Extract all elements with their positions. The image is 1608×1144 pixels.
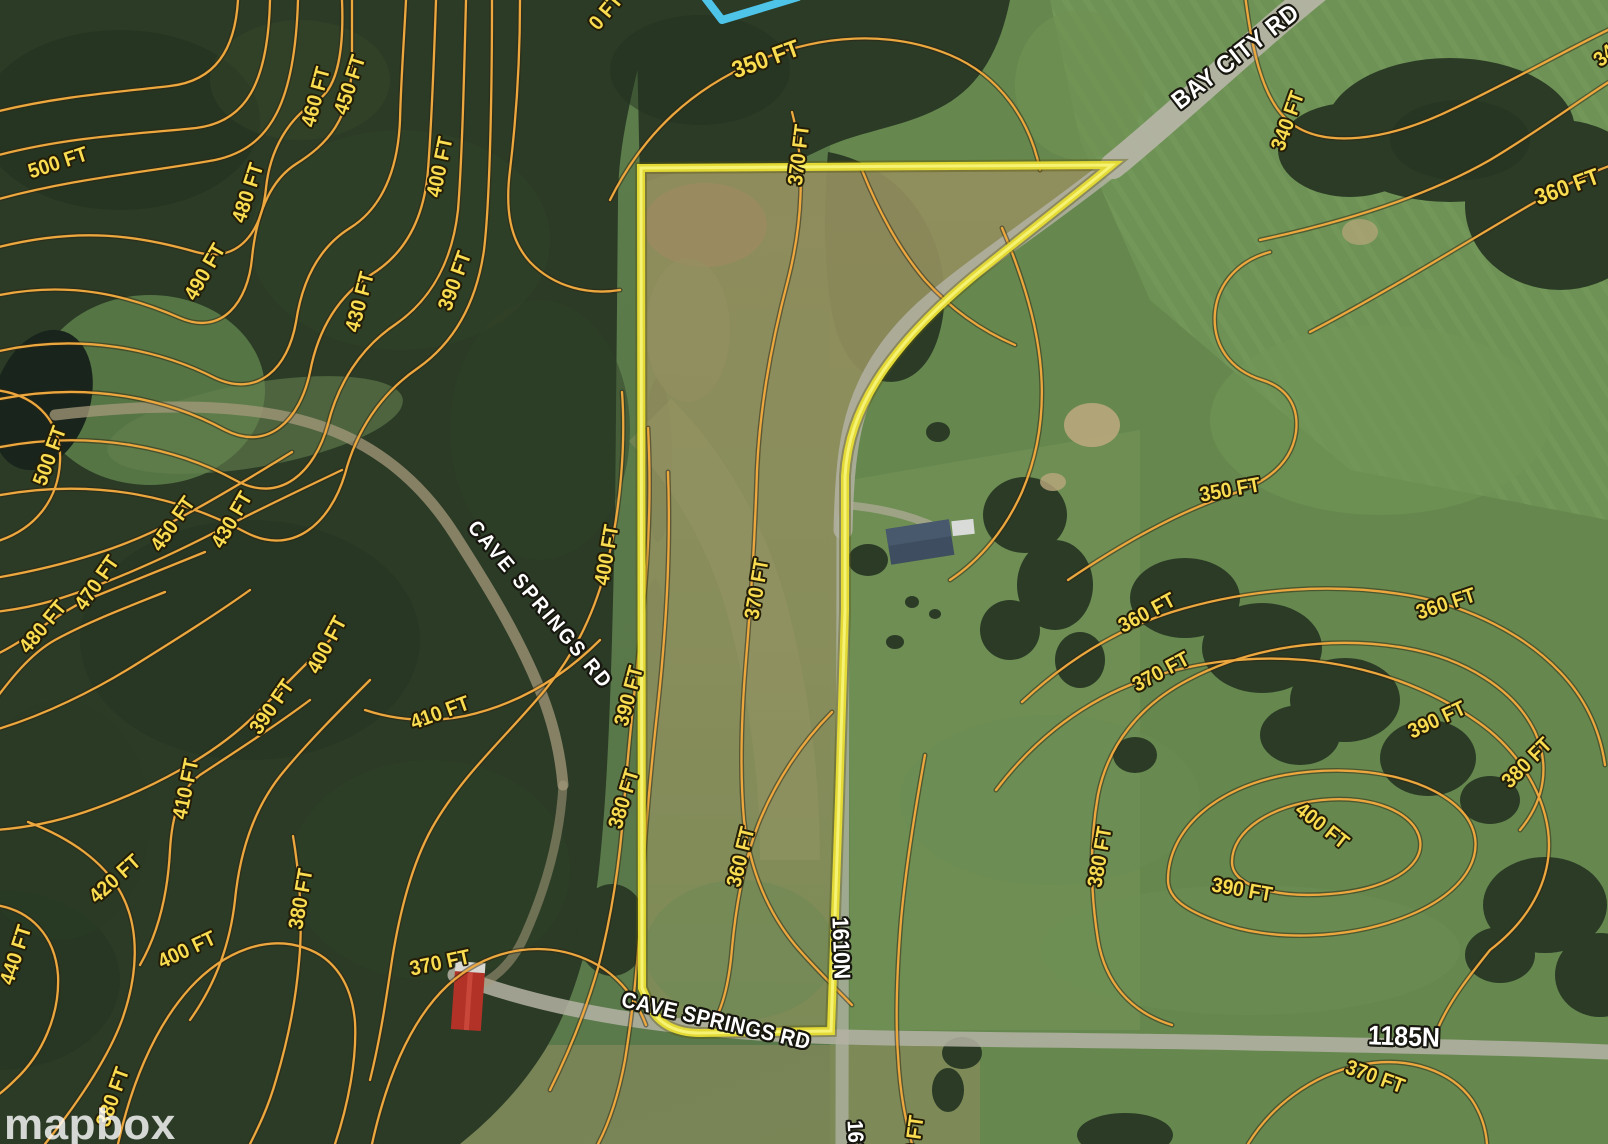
road-label-1185n-49: 1185N [1368,1022,1441,1051]
road-label-1610n-48: 1610N [828,916,853,979]
parcel-boundary[interactable] [641,165,1112,1033]
mapbox-watermark[interactable]: mapbox [4,1100,176,1144]
road-label-1610n-50: 1610N [843,1120,868,1144]
map-canvas[interactable]: 500 FT490 FT480 FT460 FT450 FT400 FT430 … [0,0,1608,1144]
